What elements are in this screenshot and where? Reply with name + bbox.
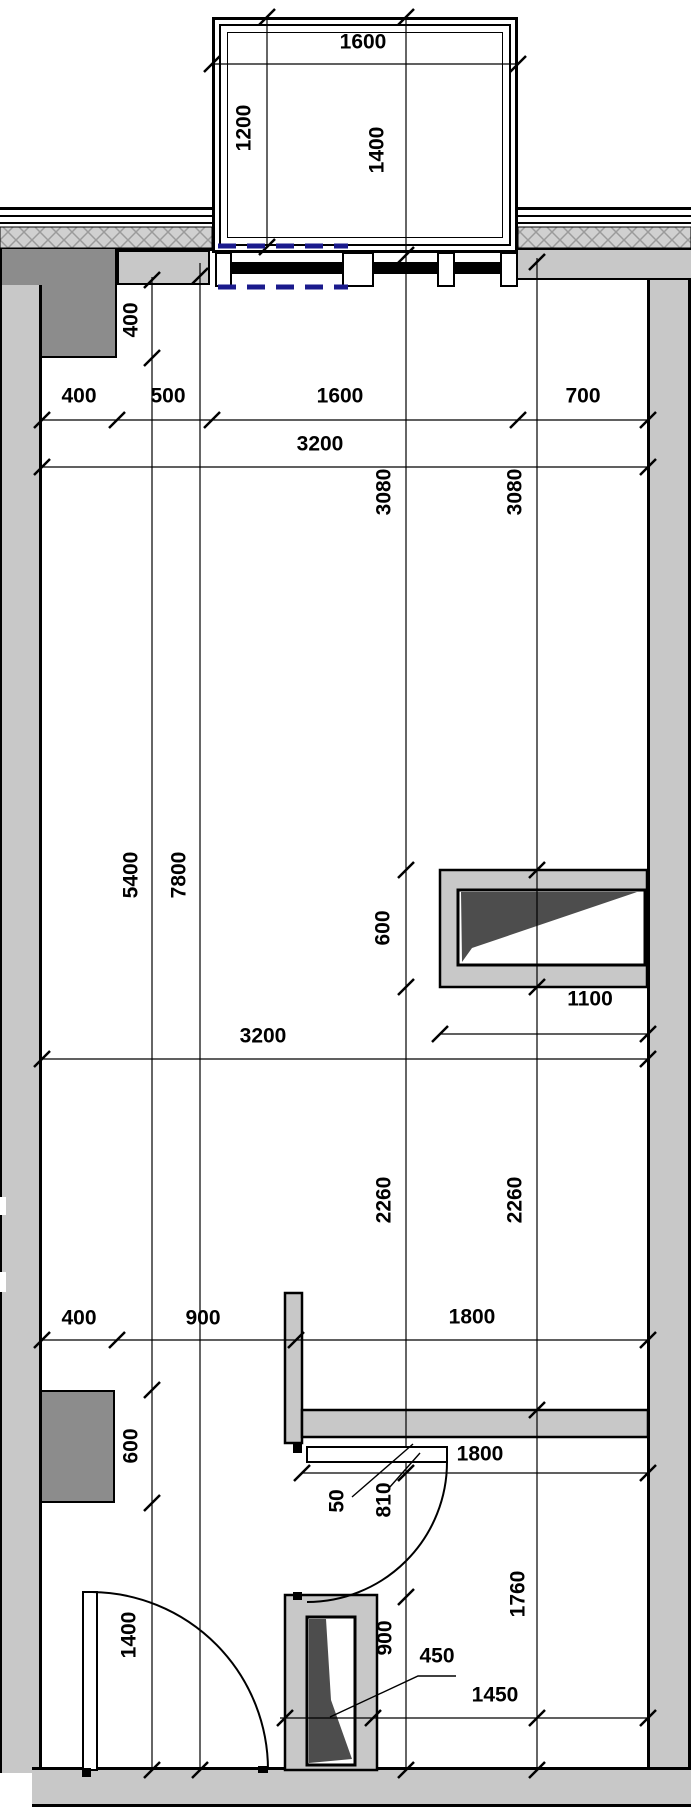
dim-bottom-1800: 1800 bbox=[449, 1307, 496, 1328]
dim-balcony-depth-left: 1200 bbox=[234, 105, 255, 152]
door-bottom-left-hinge bbox=[82, 1768, 91, 1777]
dim-2260-right: 2260 bbox=[505, 1177, 526, 1224]
dim-2260-left: 2260 bbox=[374, 1177, 395, 1224]
door-bottom-left bbox=[82, 1592, 268, 1777]
shaft-upper bbox=[440, 870, 647, 987]
door-interior-strike bbox=[293, 1592, 302, 1600]
dim-1760: 1760 bbox=[508, 1571, 529, 1618]
dim-top-400: 400 bbox=[61, 386, 96, 407]
dim-shaft2-450: 450 bbox=[419, 1646, 454, 1667]
plan-linework bbox=[0, 0, 691, 1811]
dim-3080-left: 3080 bbox=[374, 469, 395, 516]
dim-balcony-depth-right: 1400 bbox=[367, 127, 388, 174]
dim-top-1600: 1600 bbox=[317, 386, 364, 407]
dim-column2-600: 600 bbox=[121, 1428, 142, 1463]
partition-stub bbox=[285, 1293, 302, 1443]
door-interior-hinge bbox=[293, 1444, 302, 1453]
dim-gap-50: 50 bbox=[327, 1489, 348, 1512]
dim-7800: 7800 bbox=[169, 852, 190, 899]
dim-door-1400: 1400 bbox=[119, 1612, 140, 1659]
dim-top-700: 700 bbox=[565, 386, 600, 407]
dim-shaft-600: 600 bbox=[373, 910, 394, 945]
balcony-opening-dashes bbox=[218, 246, 348, 287]
door-bottom-left-strike bbox=[258, 1766, 268, 1773]
floor-plan: 1600 1200 1400 400 500 1600 700 3200 308… bbox=[0, 0, 691, 1811]
dim-top-3200: 3200 bbox=[297, 434, 344, 455]
dim-mid-3200: 3200 bbox=[240, 1026, 287, 1047]
dim-shaft-1100: 1100 bbox=[567, 989, 613, 1010]
dim-shaft2-900: 900 bbox=[375, 1620, 396, 1655]
dim-balcony-width: 1600 bbox=[340, 32, 387, 53]
door-bottom-left-leaf bbox=[83, 1592, 97, 1770]
dim-bottom-900: 900 bbox=[185, 1308, 220, 1329]
partition-horizontal bbox=[302, 1410, 648, 1437]
dim-column-400: 400 bbox=[121, 302, 142, 337]
dim-door-1800: 1800 bbox=[457, 1444, 504, 1465]
door-interior bbox=[293, 1444, 447, 1602]
dim-leaf-810: 810 bbox=[374, 1482, 395, 1517]
dim-top-500: 500 bbox=[150, 386, 185, 407]
dim-5400: 5400 bbox=[121, 852, 142, 899]
dim-3080-right: 3080 bbox=[505, 469, 526, 516]
door-interior-leaf bbox=[307, 1447, 447, 1462]
shaft-lower bbox=[285, 1595, 377, 1770]
dim-bottom-400: 400 bbox=[61, 1308, 96, 1329]
dim-bottom-1450: 1450 bbox=[472, 1685, 519, 1706]
